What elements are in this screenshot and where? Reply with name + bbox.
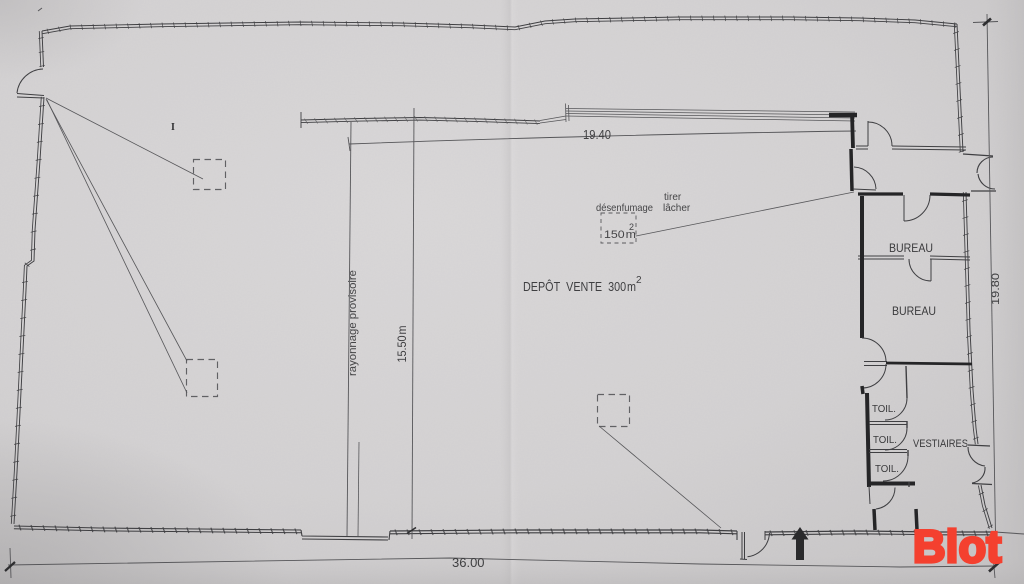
svg-text:rayonnage provisoire: rayonnage provisoire — [347, 270, 359, 376]
svg-text:BUREAU: BUREAU — [892, 306, 936, 318]
svg-text:TOIL.: TOIL. — [875, 464, 899, 475]
svg-text:36.00: 36.00 — [452, 555, 485, 570]
svg-text:VESTIAIRES: VESTIAIRES — [913, 438, 968, 450]
svg-text:TOIL.: TOIL. — [873, 435, 897, 446]
svg-text:15.50 m: 15.50 m — [395, 326, 409, 363]
svg-text:2: 2 — [629, 222, 634, 232]
svg-text:BUREAU: BUREAU — [889, 243, 933, 255]
svg-text:I: I — [171, 122, 175, 133]
svg-text:lâcher: lâcher — [663, 203, 691, 214]
svg-text:Blot: Blot — [913, 521, 1002, 572]
svg-text:2: 2 — [636, 275, 642, 286]
svg-text:TOIL.: TOIL. — [872, 404, 896, 415]
svg-text:19.80: 19.80 — [990, 273, 1002, 305]
svg-text:19.40: 19.40 — [583, 128, 611, 142]
svg-text:DEPÔT VENTE 300 m: DEPÔT VENTE 300 m — [523, 279, 636, 294]
svg-text:tirer: tirer — [664, 192, 682, 203]
svg-text:désenfumage: désenfumage — [596, 202, 653, 214]
